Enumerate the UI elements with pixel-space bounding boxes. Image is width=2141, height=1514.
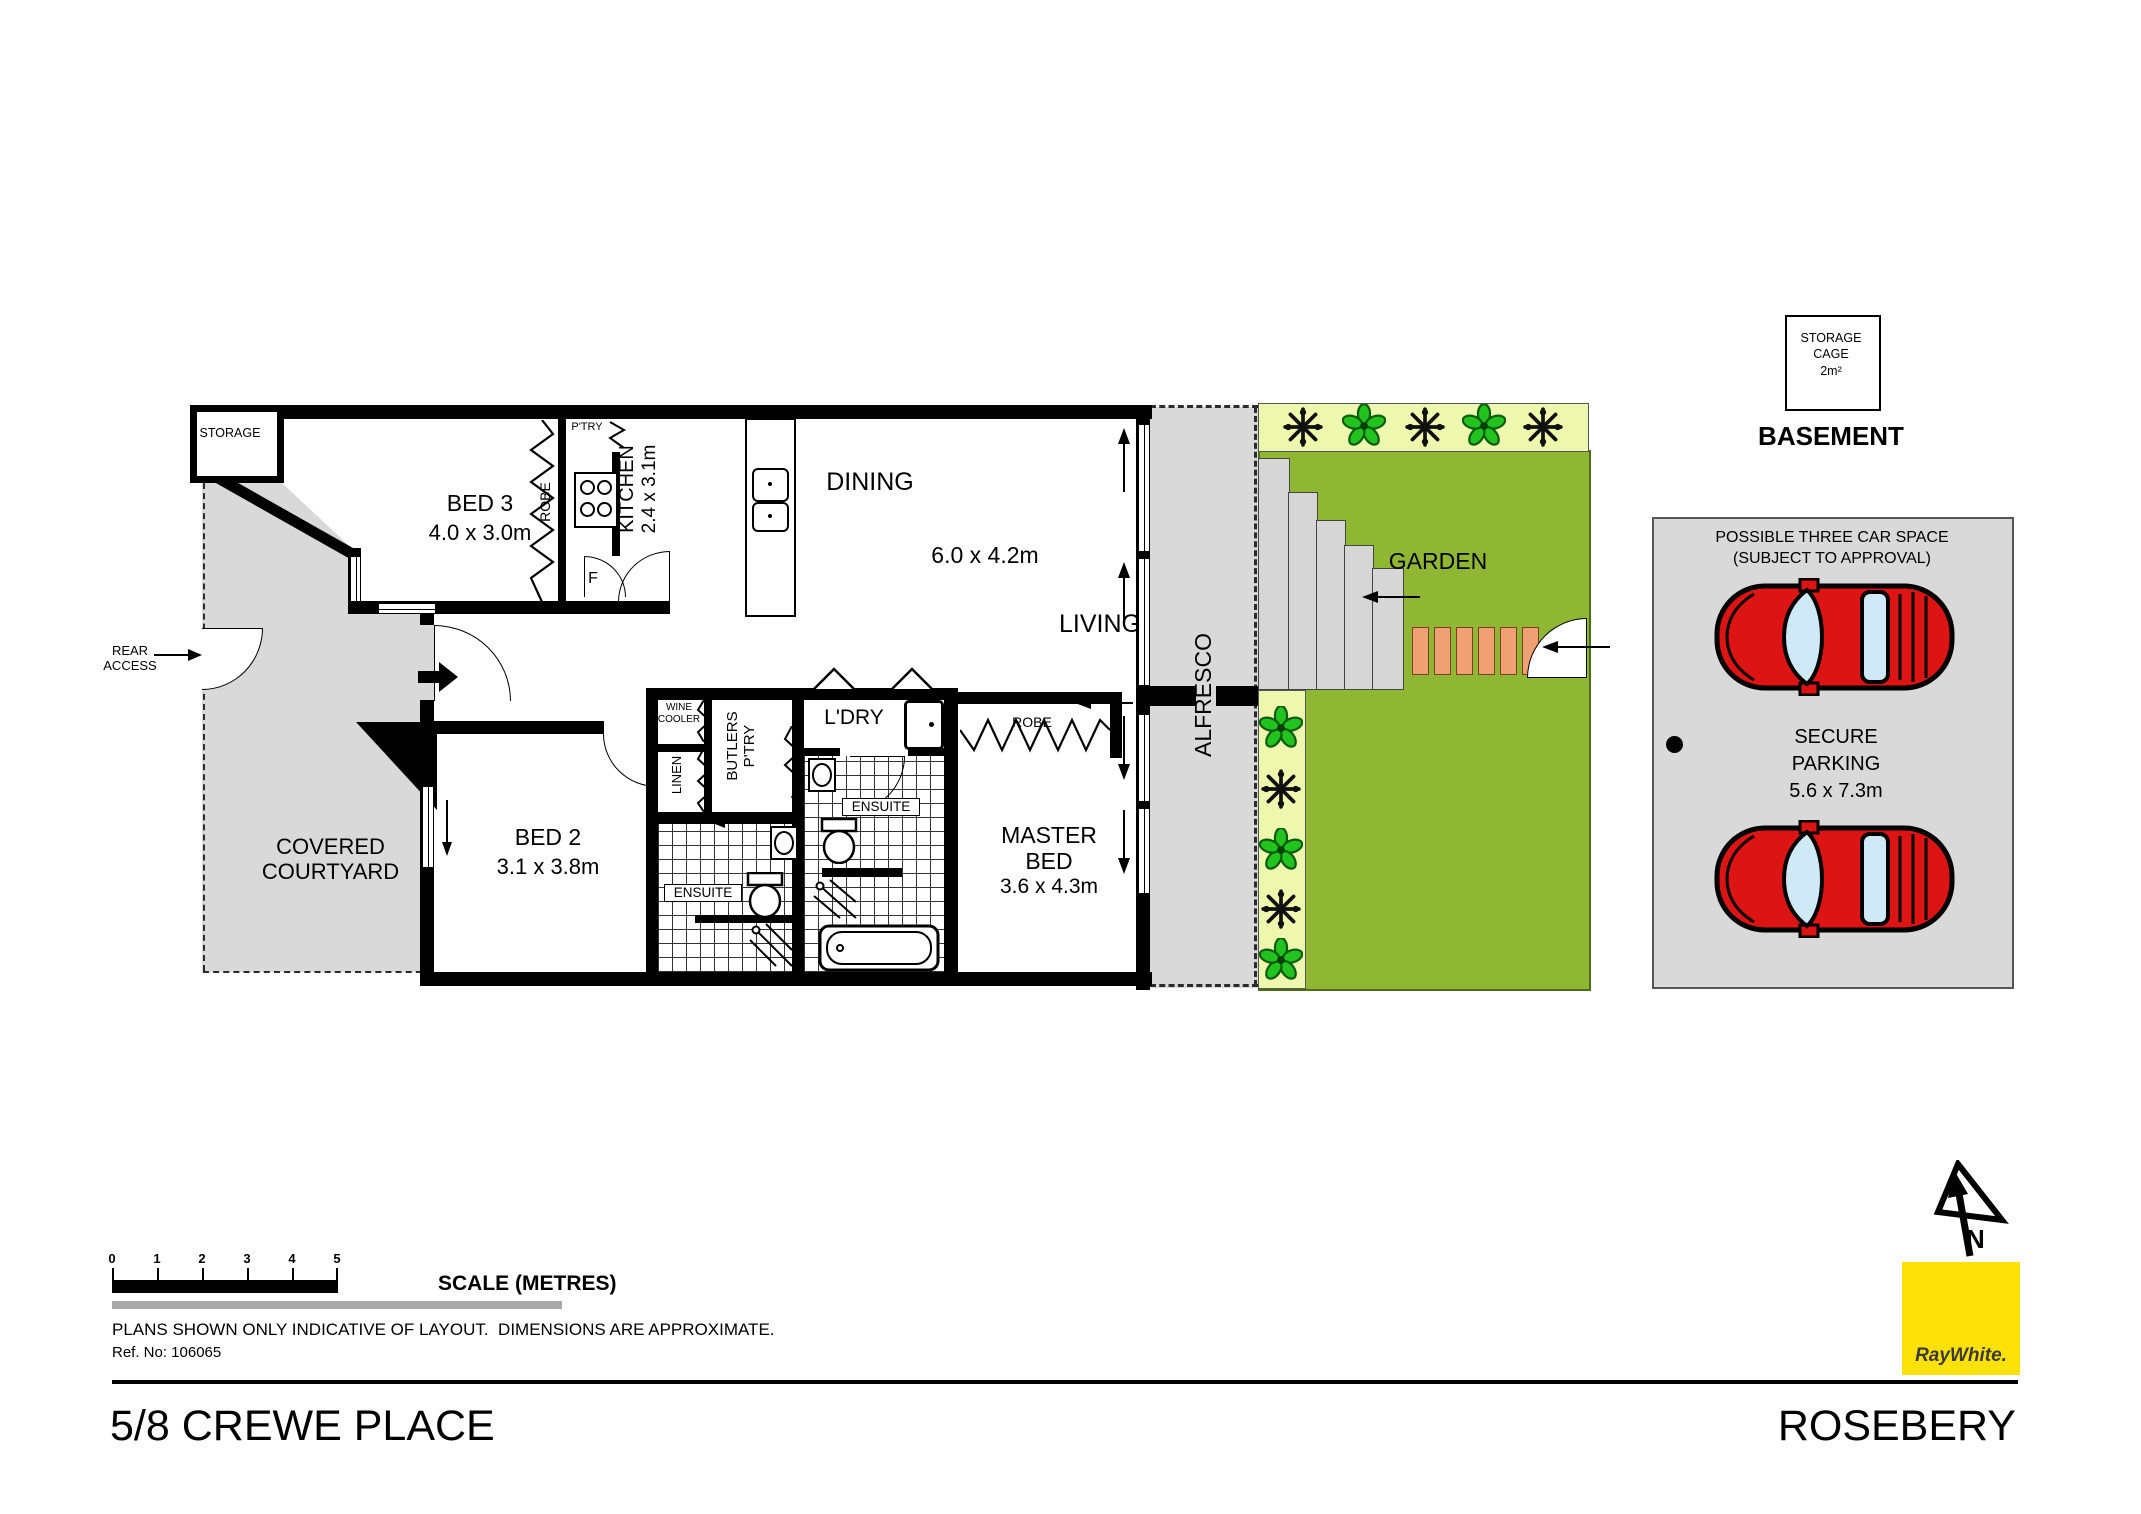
courtyard-boundary-bottom — [203, 971, 432, 973]
courtyard-line1: COVERED — [228, 834, 433, 859]
alfresco-boundary-top — [1150, 405, 1258, 408]
sliding-door-window — [1138, 714, 1150, 802]
room-label-butlers: BUTLERS P'TRY — [724, 690, 759, 802]
raywhite-logo: RayWhite. — [1902, 1262, 2020, 1375]
scale-tick — [112, 1268, 114, 1280]
paver — [1456, 627, 1473, 675]
plant-icon — [1404, 406, 1446, 448]
steps-arrow — [1362, 590, 1420, 604]
room-dims-living: 6.0 x 4.2m — [915, 542, 1055, 568]
wall-segment — [944, 688, 958, 986]
scale-tick-label: 1 — [147, 1252, 167, 1267]
room-label-garden: GARDEN — [1368, 548, 1508, 574]
scale-bar-section: 0 1 2 3 4 5 SCALE (METRES) PLANS SHOWN O… — [0, 1240, 2141, 1380]
kitchen-name: KITCHEN — [616, 416, 639, 562]
window-arrow-down — [1116, 716, 1132, 780]
paver — [1478, 627, 1495, 675]
butlers-line2: P'TRY — [741, 690, 758, 802]
sink-icon — [752, 502, 789, 532]
storage-room — [190, 405, 284, 483]
footer-divider — [112, 1380, 2018, 1384]
ensuite-arrow — [710, 816, 758, 829]
reference-number: Ref. No: 106065 — [112, 1344, 221, 1361]
butlers-line1: BUTLERS — [724, 690, 741, 802]
flower-icon — [1259, 706, 1303, 750]
label-rear-access: REAR ACCESS — [92, 644, 168, 674]
master-line1: MASTER — [975, 822, 1123, 848]
room-label-bed3: BED 3 — [400, 490, 560, 516]
parking-note-line1: POSSIBLE THREE CAR SPACE — [1662, 528, 2002, 549]
car-icon — [1712, 820, 1957, 938]
plant-icon — [1260, 888, 1302, 930]
robe-arrow — [1075, 696, 1133, 710]
basement-title: BASEMENT — [1731, 422, 1931, 452]
flower-icon — [1342, 404, 1386, 448]
room-label-robe-bed3: ROBE — [537, 456, 553, 548]
room-label-bed2: BED 2 — [460, 824, 636, 850]
scale-tick — [292, 1268, 294, 1280]
room-label-fridge: F — [578, 570, 608, 588]
raywhite-logo-text: RayWhite. — [1902, 1345, 2020, 1367]
scale-tick — [336, 1268, 338, 1280]
cage-line3: 2m² — [1785, 363, 1877, 379]
master-dims: 3.6 x 4.3m — [975, 875, 1123, 899]
garden-steps — [1258, 458, 1290, 690]
garden-steps — [1372, 568, 1404, 690]
alfresco-boundary-bottom — [1150, 984, 1258, 987]
rear-access-line2: ACCESS — [92, 659, 168, 674]
scale-tick — [202, 1268, 204, 1280]
scale-tick-label: 2 — [192, 1252, 212, 1267]
bathtub-icon — [818, 924, 940, 972]
scale-tick-label: 4 — [282, 1252, 302, 1267]
window-arrow-up — [1116, 428, 1132, 492]
paver — [1434, 627, 1451, 675]
laundry-bifold-doors — [810, 666, 940, 690]
garden-steps — [1316, 520, 1346, 690]
room-label-living: LIVING — [1030, 610, 1170, 639]
entry-arrow — [418, 662, 460, 692]
column-dot — [1666, 736, 1683, 753]
secure-parking-label: SECURE PARKING 5.6 x 7.3m — [1686, 724, 1986, 805]
plant-icon — [1522, 406, 1564, 448]
window — [350, 556, 361, 602]
basin-icon — [808, 758, 836, 792]
property-address: 5/8 CREWE PLACE — [110, 1402, 495, 1451]
wall-segment — [434, 721, 604, 734]
paver — [1500, 627, 1517, 675]
shower-icon — [746, 920, 796, 970]
wall-segment — [646, 688, 658, 986]
flower-icon — [1259, 828, 1303, 872]
paver — [1412, 627, 1429, 675]
courtyard-line2: COURTYARD — [228, 859, 433, 884]
shower-icon — [810, 876, 860, 922]
scale-tick — [247, 1268, 249, 1280]
room-label-linen: LINEN — [670, 744, 685, 806]
wall-segment — [1216, 686, 1258, 706]
room-label-storage: STORAGE — [196, 426, 264, 440]
plant-icon — [1282, 406, 1324, 448]
parking-note: POSSIBLE THREE CAR SPACE (SUBJECT TO APP… — [1662, 528, 2002, 570]
north-letter: N — [1966, 1224, 1985, 1254]
sliding-door-window — [1138, 808, 1150, 894]
wall-segment — [190, 405, 1152, 419]
courtyard-boundary-left — [203, 473, 205, 971]
butlers-bifold — [782, 726, 802, 798]
room-label-ensuite-master: ENSUITE — [842, 798, 920, 816]
wine-line1: WINE — [656, 702, 702, 714]
secure-line1: SECURE — [1686, 724, 1986, 751]
property-suburb: ROSEBERY — [1600, 1402, 2016, 1451]
scale-label: SCALE (METRES) — [438, 1272, 617, 1296]
basin-icon — [770, 826, 798, 860]
toilet-icon — [818, 818, 860, 864]
disclaimer-text: PLANS SHOWN ONLY INDICATIVE OF LAYOUT. D… — [112, 1320, 775, 1340]
scale-tick-label: 3 — [237, 1252, 257, 1267]
window-arrow-down — [440, 800, 454, 856]
rear-access-line1: REAR — [92, 644, 168, 659]
wall-segment — [646, 688, 800, 700]
room-label-laundry: L'DRY — [808, 706, 900, 730]
flower-icon — [1259, 938, 1303, 982]
room-dims-bed2: 3.1 x 3.8m — [455, 854, 641, 879]
scale-tick-label: 5 — [327, 1252, 347, 1267]
toilet-icon — [744, 872, 786, 918]
scale-bar — [112, 1280, 338, 1293]
stove-icon — [574, 472, 618, 528]
scale-tick — [157, 1268, 159, 1280]
room-label-robe-master: ROBE — [992, 714, 1072, 730]
secure-line2: PARKING — [1686, 751, 1986, 778]
window — [378, 603, 436, 614]
storage-cage-label: STORAGE CAGE 2m² — [1785, 330, 1877, 379]
wall-segment — [804, 748, 840, 756]
north-arrow-icon: N — [1910, 1160, 2010, 1260]
sliding-door-window — [1138, 424, 1150, 552]
plant-icon — [1260, 768, 1302, 810]
cage-line2: CAGE — [1785, 346, 1877, 362]
room-label-ensuite-bed2: ENSUITE — [664, 884, 742, 902]
scale-tick-label: 0 — [102, 1252, 122, 1267]
kitchen-dims: 2.4 x 3.1m — [639, 416, 661, 562]
room-label-courtyard: COVERED COURTYARD — [228, 834, 433, 885]
laundry-tub-icon — [904, 700, 944, 750]
wine-line2: COOLER — [656, 714, 702, 726]
master-line2: BED — [975, 848, 1123, 874]
linen-bifold — [696, 748, 712, 812]
wall-segment — [420, 972, 1152, 986]
car-icon — [1712, 578, 1957, 696]
room-label-pantry: P'TRY — [564, 421, 610, 434]
room-label-alfresco: ALFRESCO — [1190, 612, 1216, 778]
garden-steps — [1288, 492, 1318, 690]
flower-icon — [1462, 404, 1506, 448]
basement-panel: STORAGE CAGE 2m² BASEMENT POSSIBLE THREE… — [1600, 300, 2141, 1000]
scale-grey-rule — [112, 1301, 562, 1309]
sink-icon — [752, 468, 789, 502]
room-label-dining: DINING — [800, 468, 940, 497]
room-label-master: MASTER BED 3.6 x 4.3m — [975, 822, 1123, 899]
secure-dims: 5.6 x 7.3m — [1686, 778, 1986, 805]
room-label-kitchen: KITCHEN 2.4 x 3.1m — [616, 416, 661, 562]
room-label-wine-cooler: WINE COOLER — [656, 702, 702, 725]
parking-note-line2: (SUBJECT TO APPROVAL) — [1662, 549, 2002, 570]
cage-line1: STORAGE — [1785, 330, 1877, 346]
